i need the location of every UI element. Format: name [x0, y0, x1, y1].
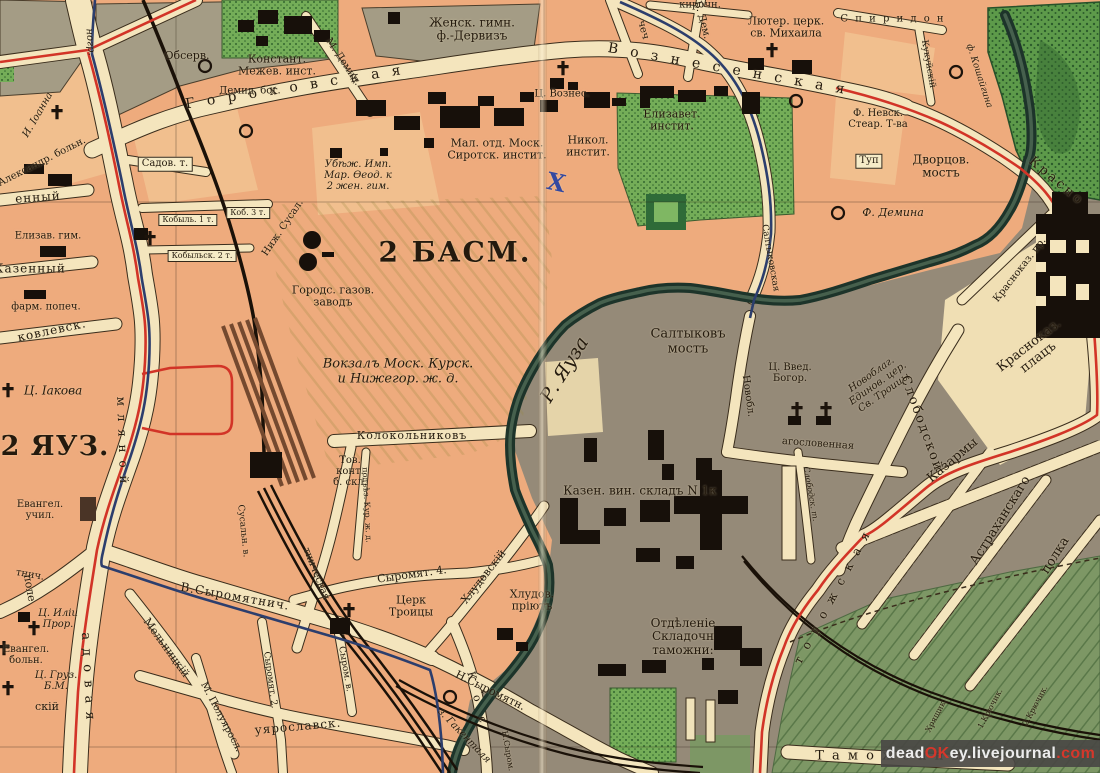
lane-kryuchik-2: 2.Крючик.: [1022, 684, 1051, 727]
watermark-text-com: .com: [1056, 745, 1095, 763]
street-spiridon: С п и р и д о н: [840, 13, 945, 24]
street-n-syrom-part: Н.Сыром.: [499, 730, 515, 772]
poi-vvedenia-church: Ц. Введ. Богор.: [768, 362, 811, 384]
poi-nikol-institute: Никол. инстит.: [566, 135, 610, 160]
lane-sadovy-tupik: Садов. т.: [138, 157, 193, 172]
poi-iakova-church: Ц. Іакова: [24, 384, 83, 397]
street-kazenny: Казенный: [0, 262, 66, 275]
lane-kryuchik-1: 1.Крючик.: [977, 687, 1006, 730]
street-poluyaroslavskaya: уярославск.: [254, 717, 342, 738]
street-novoblagoslovennaya-v: Новобл.: [740, 374, 757, 417]
street-krasnokaz-proezd: Красноказ. пр.: [991, 236, 1048, 305]
street-v-syromyatnicheskaya: В.Сыромятнич.: [179, 581, 290, 613]
street-zemlyanoy-val: м л я н о й: [114, 396, 131, 485]
poi-dervis-gymnasium: Женск. гимн. ф.-Дервизъ: [429, 17, 515, 44]
poi-demid-almshouse: Демид. бог.: [219, 85, 280, 96]
watermark-text-ok: OK: [925, 745, 950, 763]
lane-kobylsky-3: Коб. 3 т.: [226, 207, 270, 219]
street-syromyatnicheskaya: тническая: [300, 546, 331, 602]
street-khludovsky: Хлудовскій: [459, 548, 509, 607]
poi-kursk-station: Вокзалъ Моск. Курск. и Нижегор. ж. д.: [323, 357, 474, 386]
poi-refuge-mariinsky: Убѣж. Имп. Мар. Ѳеод. к 2 жен. гим.: [324, 159, 392, 193]
poi-gas-works: Городс. газов. заводъ: [292, 285, 374, 310]
poi-alexandr-hospital: Александр. больн.: [0, 135, 88, 189]
street-yakovlevskaya: ковлевск.: [16, 317, 87, 345]
poi-saltykov-bridge: Салтыковъ мостъ: [650, 327, 725, 356]
poi-lutheran-church: Лютер. церк. св. Михаила: [748, 16, 824, 41]
map-canvas: 2 БАСМ.2 ЯУЗ.Г о р о х о в с к а яВ о з …: [0, 0, 1100, 773]
street-nogr-part: ногр.: [83, 28, 97, 56]
street-kukuysky: Кукуйскій: [919, 39, 937, 89]
poi-factory-koshaygina: ф. Кошайгина: [964, 43, 994, 109]
poi-evangel-hospital: Евангел. больн.: [3, 644, 49, 666]
street-melnitsky: Мельницкій: [140, 616, 191, 680]
street-kolokolnikov: Колокольниковъ: [357, 430, 468, 442]
street-slobodskoy: Слободской: [897, 374, 945, 474]
district-label-yauza: 2 ЯУЗ.: [1, 432, 110, 462]
poi-evangel-school: Евангел. учил.: [17, 499, 63, 521]
poi-wine-warehouse: Казен. вин. складъ N 1к: [563, 484, 716, 497]
street-zolotorozhskaya: т о р о ж с к а я: [792, 528, 874, 667]
poi-ilii-church: Ц. Иліи Прор.: [38, 608, 78, 630]
street-saltykovskaya: Салтыковская: [759, 224, 781, 293]
street-m-poluyaroslavsky: М. Полуяросл.: [198, 680, 244, 754]
street-novoblagoslovennaya-h: агословенная: [782, 436, 855, 452]
poi-troitsy-church: Церк Троицы: [389, 595, 433, 620]
poi-krasnokaz-plats: Красноказ. плацъ: [995, 317, 1074, 387]
poi-ioanna-church: И. Іоанна: [21, 90, 56, 139]
district-label-basmannaya: 2 БАСМ.: [379, 236, 532, 267]
poi-khludov-shelter: Хлудов. пріютъ: [510, 589, 554, 614]
street-syromyatnichesky-4: Сыромят. 4.: [377, 564, 448, 586]
watermark: deadOKey.livejournal.com: [881, 740, 1100, 767]
river-yauza-label: Р. Яуза: [537, 333, 594, 406]
poi-observatory: Обсерв.: [164, 50, 209, 62]
poi-barracks-3: полка: [1039, 535, 1073, 577]
lane-kobylsky-2: Кобыльск. 2 т.: [168, 250, 237, 262]
watermark-text-dead: dead: [886, 745, 925, 763]
map-labels: 2 БАСМ.2 ЯУЗ.Г о р о х о в с к а яВ о з …: [0, 0, 1100, 773]
street-tupik: Туп: [855, 154, 882, 169]
poi-voznesenia-church: Ц. Вознес.: [534, 88, 589, 99]
x-mark: X: [544, 168, 568, 198]
lane-kobylsky-1: Кобыль. 1 т.: [158, 214, 217, 226]
street-kostomarovsky: К о с: [464, 670, 490, 730]
poi-barracks-2: Астраханскаго: [968, 474, 1034, 568]
poi-customs-depot: Отдѣленіе Складочн таможни:: [651, 617, 716, 657]
street-slobodskoy-tupik: Слободск. т.: [801, 466, 819, 522]
street-chech-part: чеч: [635, 19, 651, 40]
street-susalny: Сусальн. в.: [235, 504, 251, 558]
poi-farm-popech: фарм. попеч.: [11, 301, 80, 312]
watermark-text-ey: ey.livejournal: [950, 745, 1057, 763]
street-sadovaya: а д о в а я: [77, 632, 96, 722]
poi-nevsky-stearin: Ф. Невск. Стеар. Т-ва: [848, 108, 907, 130]
street-krasnokazarmennaya: Красно: [1025, 155, 1086, 210]
street-syromyatnicheskaya-nab: Сыром. в.: [336, 646, 354, 693]
poi-factory-demina: Ф. Демина: [862, 207, 924, 219]
poi-elizav-gymnasium: Елизав. гим.: [15, 230, 82, 241]
poi-elizavet-institute: Елизавет. инстит.: [643, 109, 700, 134]
lane-khryashchik: Хрящик.: [925, 698, 950, 734]
street-sky-part: скій: [35, 701, 59, 713]
street-voznesenskaya: В о з н е с е н с к а я: [606, 41, 849, 99]
street-enny-part: енный: [15, 190, 61, 207]
poi-orphan-institute: Мал. отд. Моск. Сиротск. инстит.: [447, 138, 546, 163]
poi-dvortsov-bridge: Дворцов. мостъ: [913, 154, 970, 181]
street-podezd-kur: подъѣз. Кур. ж. д.: [360, 467, 373, 543]
poi-mezhevoy-institute: Констант. Межев. инст.: [238, 54, 316, 79]
poi-gruz-church: Ц. Груз. Б.М.: [35, 670, 78, 692]
street-syromyatnichesky-2: Сыромят. 2.: [261, 651, 279, 709]
